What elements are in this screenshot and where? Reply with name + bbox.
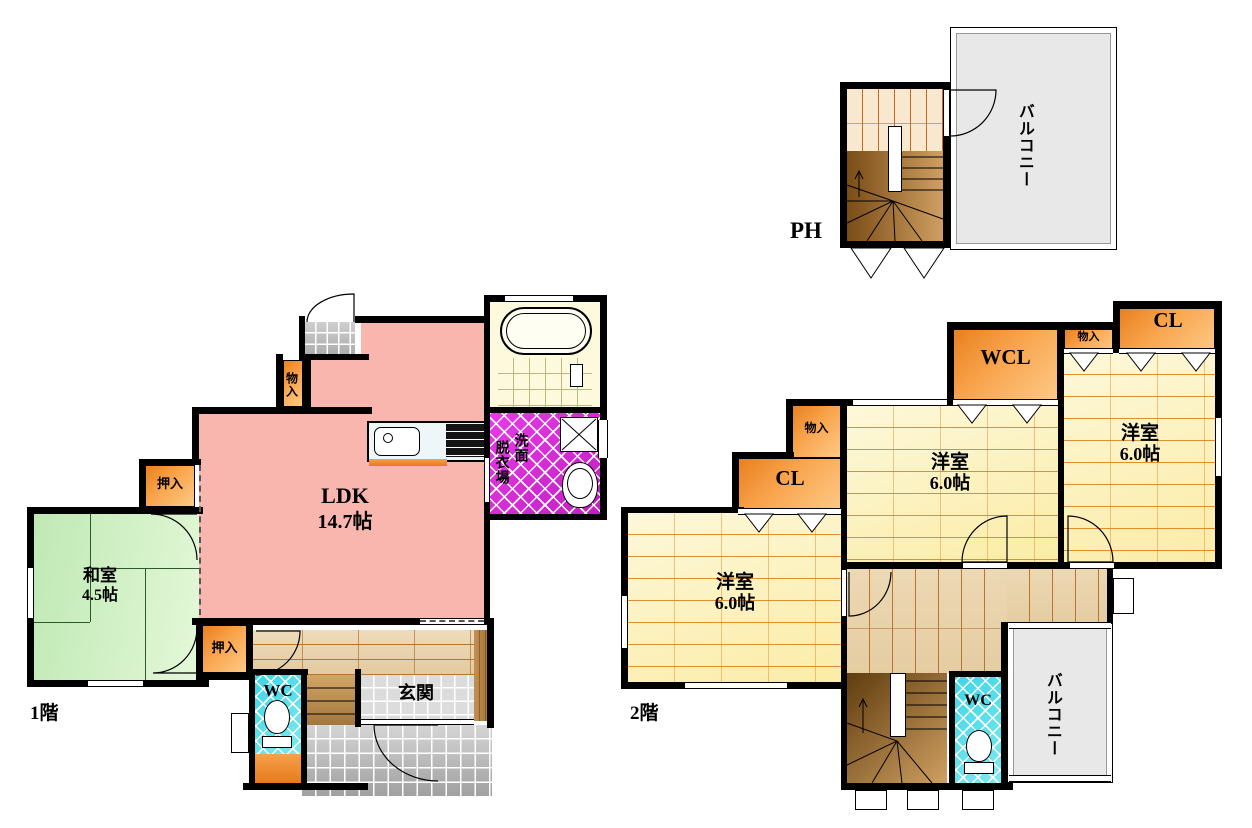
wall (840, 241, 950, 248)
door-swing-icon (904, 248, 944, 278)
ph-title: PH (790, 218, 838, 244)
stairwell-void (888, 126, 902, 192)
floorplan-canvas: LDK14.7帖 和室4.5帖 押入 押入 物入 洗面 脱衣場 WC 玄関 1階 (0, 0, 1252, 828)
door-arc-icon (950, 90, 996, 136)
balcony-ph (950, 27, 1117, 250)
door-opening (944, 90, 949, 136)
wall (840, 82, 950, 89)
door-swing-icon (851, 248, 891, 278)
ph-plan: PH バルコニー (0, 0, 1252, 828)
label-balcony-ph: バルコニー (1015, 78, 1033, 213)
wall (840, 82, 847, 248)
